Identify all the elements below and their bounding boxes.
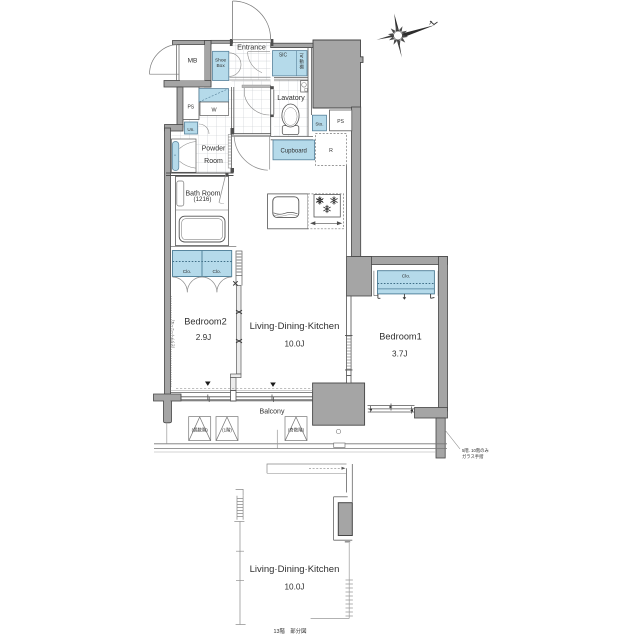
svg-text:可: 可 [300,54,305,59]
svg-text:(偶数階): (偶数階) [192,427,209,434]
svg-text:Clo.: Clo. [213,269,222,275]
svg-text:5階. 10階のみ: 5階. 10階のみ [462,447,489,454]
svg-text:ガラス手摺: ガラス手摺 [462,453,483,460]
svg-text:PS: PS [187,105,194,111]
svg-text:10.0J: 10.0J [284,583,304,592]
svg-text:棚: 棚 [300,64,304,71]
svg-text:Lavatory: Lavatory [277,93,305,102]
svg-text:Bedroom1: Bedroom1 [379,332,421,342]
svg-text:Room: Room [204,158,223,165]
svg-text:Living·Dining·Kitchen: Living·Dining·Kitchen [250,564,340,575]
svg-text:Clo.: Clo. [183,269,192,275]
svg-text:(1216): (1216) [194,196,212,203]
svg-text:Cupboard: Cupboard [281,148,307,154]
svg-text:Entrance: Entrance [237,43,266,52]
svg-text:Clo.: Clo. [402,274,411,280]
svg-text:R: R [329,148,333,154]
svg-text:13階 部分図: 13階 部分図 [274,627,307,635]
svg-text:(奇数階): (奇数階) [288,427,305,434]
svg-text:(ピクチャーレール): (ピクチャーレール) [170,320,175,348]
svg-text:2.9J: 2.9J [196,333,211,342]
svg-text:10.0J: 10.0J [284,340,304,349]
svg-text:Bedroom2: Bedroom2 [184,317,226,327]
svg-text:PS: PS [337,119,344,125]
svg-text:Powder: Powder [202,146,226,153]
svg-text:Un.: Un. [187,127,194,132]
svg-text:Living·Dining·Kitchen: Living·Dining·Kitchen [250,321,340,332]
svg-text:3.7J: 3.7J [392,350,407,359]
svg-text:Box: Box [216,63,225,69]
svg-text:SIC: SIC [279,53,288,59]
svg-text:Balcony: Balcony [260,409,285,416]
svg-text:(1階): (1階) [222,427,232,434]
svg-text:MB: MB [188,58,198,65]
svg-text:Sto.: Sto. [315,122,323,127]
svg-text:Shoe: Shoe [215,58,227,64]
